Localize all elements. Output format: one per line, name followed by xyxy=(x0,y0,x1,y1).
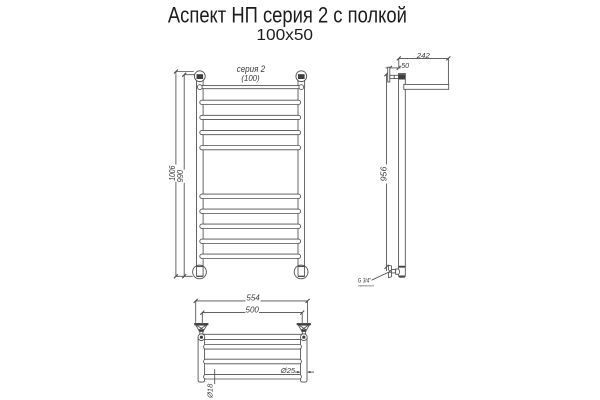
svg-text:(100): (100) xyxy=(241,74,260,83)
svg-text:242: 242 xyxy=(416,53,430,60)
svg-text:554: 554 xyxy=(246,294,260,303)
svg-text:500: 500 xyxy=(246,305,260,314)
svg-text:наружная резьба: наружная резьба xyxy=(358,284,374,288)
svg-text:990: 990 xyxy=(175,170,185,183)
svg-text:серия 2: серия 2 xyxy=(237,64,265,74)
svg-text:50: 50 xyxy=(401,63,409,70)
svg-text:Ø25: Ø25 xyxy=(280,366,296,375)
svg-text:Ø18: Ø18 xyxy=(205,383,214,399)
svg-text:100x50: 100x50 xyxy=(256,27,313,44)
svg-text:Аспект НП серия 2 с полкой: Аспект НП серия 2 с полкой xyxy=(168,2,407,27)
svg-text:956: 956 xyxy=(379,166,389,181)
